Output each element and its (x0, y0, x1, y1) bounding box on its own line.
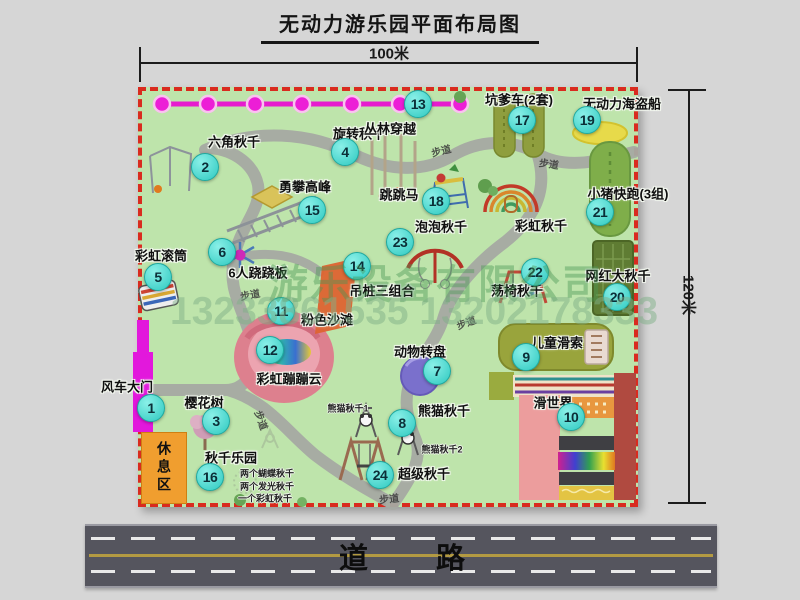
rest-area-box: 休息区 (141, 432, 187, 504)
rest-area-label: 休息区 (154, 441, 174, 495)
road-edge-top (85, 524, 717, 526)
park-map-area (138, 87, 638, 507)
dimension-right-label: 120米 (679, 275, 700, 315)
park-layout-page: 无动力游乐园平面布局图 (0, 0, 800, 600)
road-edge-bottom (85, 586, 717, 588)
road-band: 道 路 (85, 524, 717, 588)
title-wrap: 无动力游乐园平面布局图 (0, 8, 800, 44)
dimension-top-label: 100米 (369, 43, 409, 64)
road-label: 道 路 (339, 535, 495, 577)
page-title: 无动力游乐园平面布局图 (261, 8, 539, 44)
